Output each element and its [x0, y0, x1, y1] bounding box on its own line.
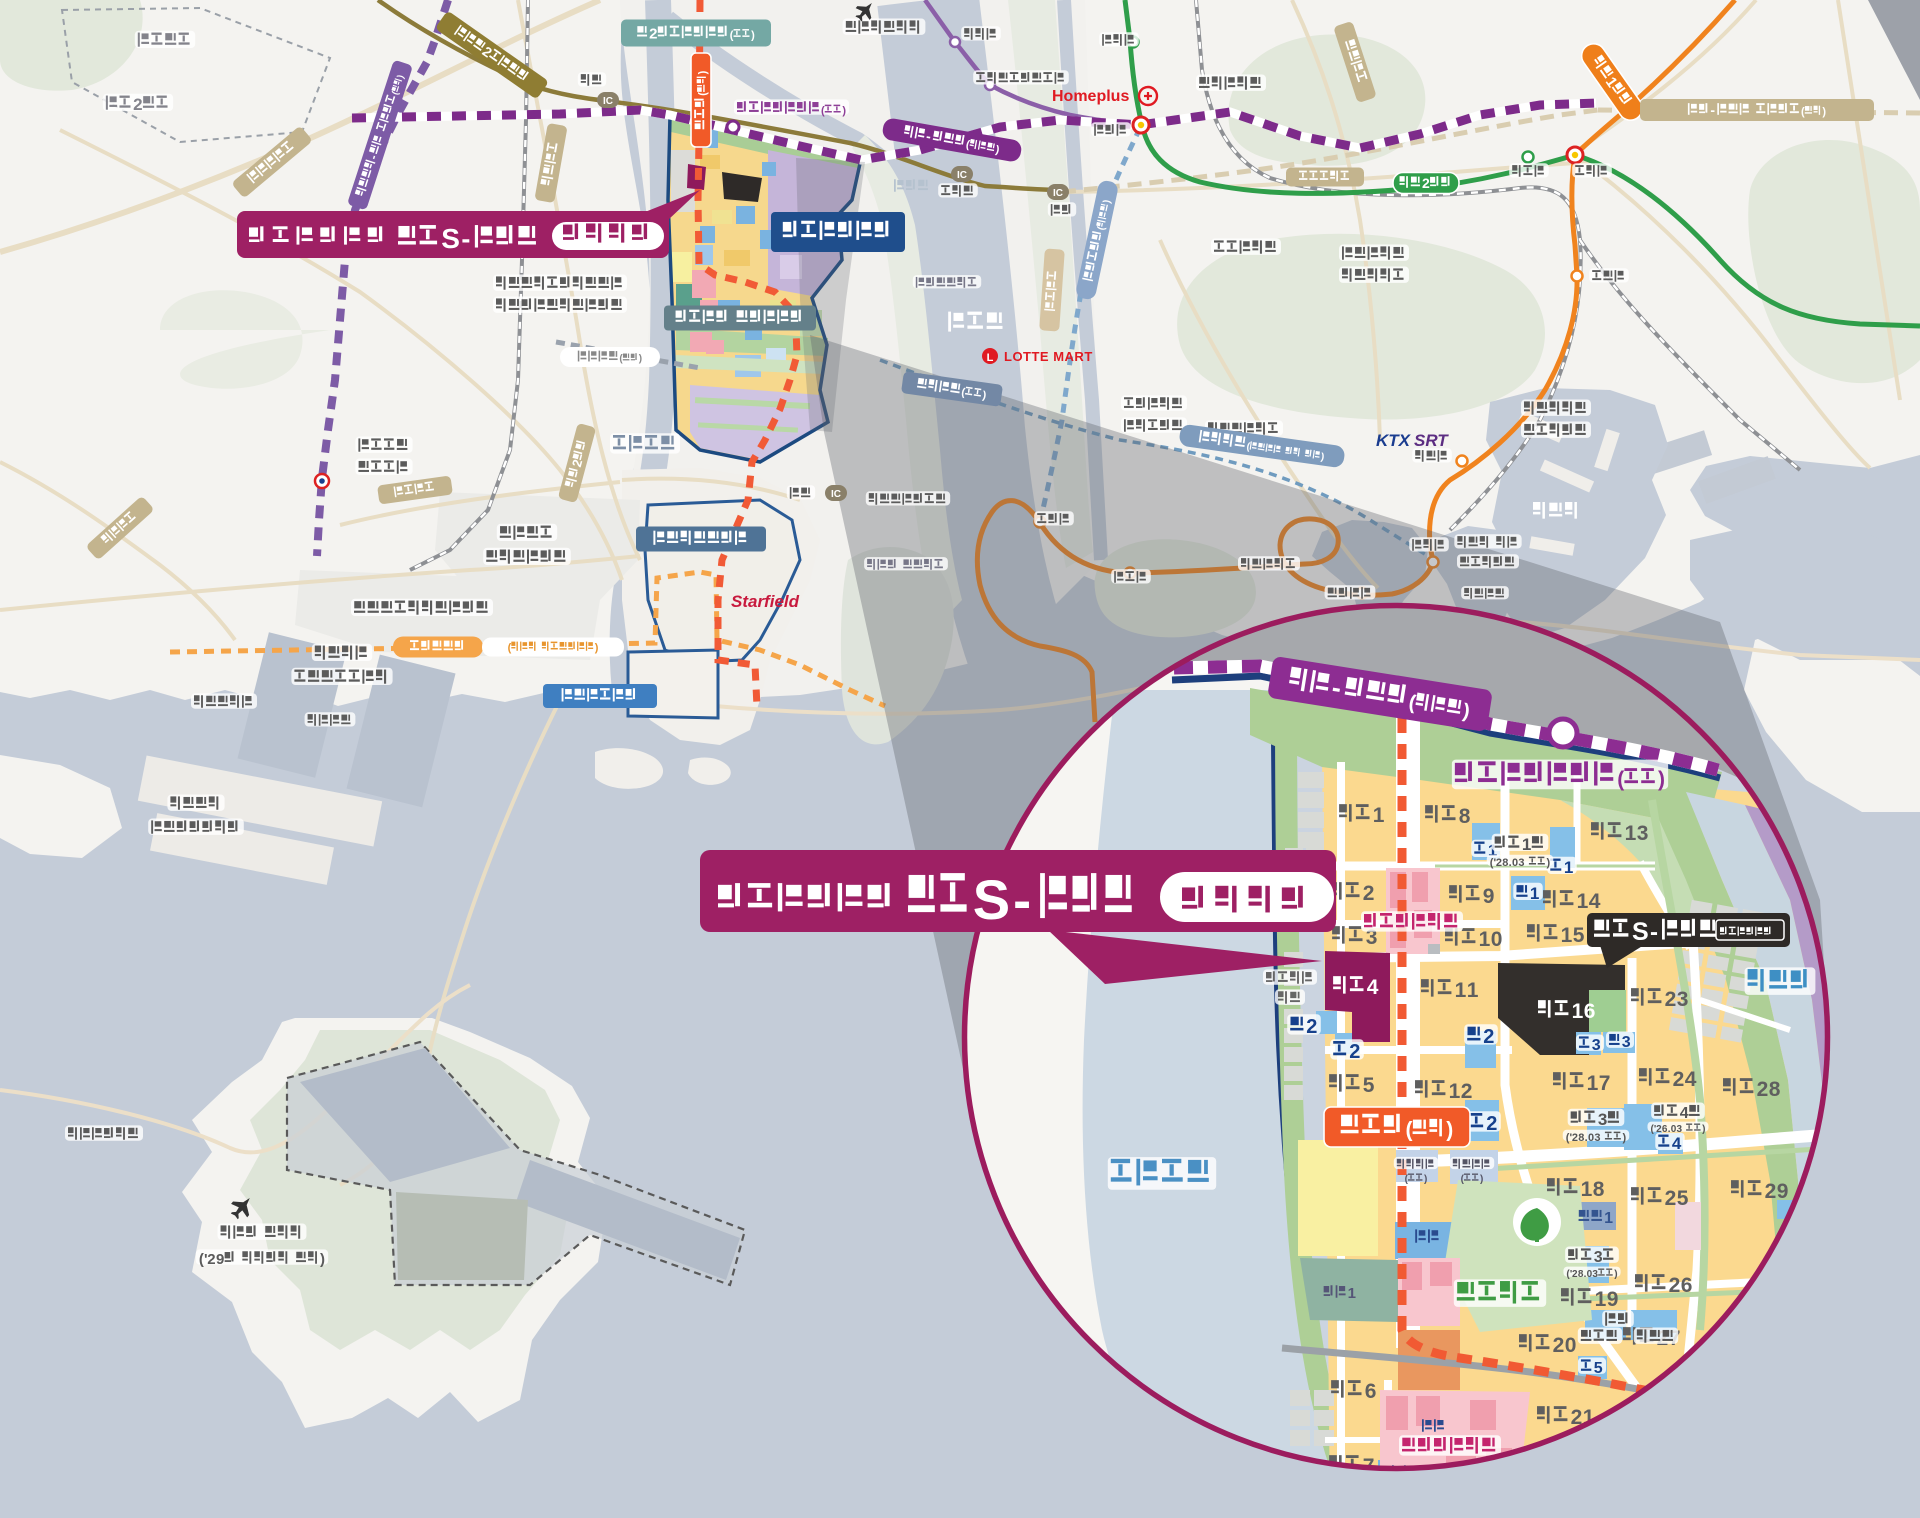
svg-text:2: 2	[1461, 1080, 1473, 1103]
svg-text:2: 2	[1306, 1016, 1317, 1038]
svg-text:5: 5	[1677, 1187, 1689, 1210]
svg-text:0: 0	[1491, 928, 1503, 951]
svg-text:4: 4	[1680, 1105, 1689, 1122]
svg-text:3: 3	[1622, 1034, 1631, 1051]
svg-text:-: -	[1650, 919, 1658, 946]
svg-text:3: 3	[1592, 1269, 1598, 1280]
svg-text:8: 8	[1459, 805, 1471, 828]
svg-text:8: 8	[1593, 1178, 1605, 1201]
svg-text:1: 1	[1577, 890, 1589, 913]
svg-text:2: 2	[1349, 1041, 1360, 1063]
svg-text:2: 2	[1669, 1274, 1681, 1297]
svg-text:3: 3	[1598, 1110, 1607, 1129]
svg-text:IC: IC	[957, 170, 967, 181]
svg-text:6: 6	[1584, 1000, 1596, 1023]
svg-text:): )	[1547, 857, 1551, 869]
svg-text:KTX: KTX	[1376, 431, 1412, 450]
svg-text:2: 2	[1572, 1132, 1578, 1144]
svg-text:2: 2	[1765, 1180, 1777, 1203]
svg-text:): )	[1446, 1119, 1453, 1142]
svg-text:(: (	[508, 642, 512, 654]
svg-text:2: 2	[1422, 175, 1430, 191]
svg-text:2: 2	[1665, 1187, 1677, 1210]
svg-text:1: 1	[1467, 979, 1479, 1002]
svg-text:L: L	[987, 352, 994, 364]
svg-text:): )	[1822, 106, 1826, 118]
svg-text:2: 2	[1757, 1078, 1769, 1101]
svg-text:1: 1	[1530, 884, 1539, 903]
svg-text:): )	[595, 642, 599, 654]
svg-text:IC: IC	[1053, 188, 1063, 199]
svg-text:): )	[1702, 1124, 1705, 1135]
svg-text:2: 2	[1486, 1113, 1497, 1135]
svg-text:): )	[1480, 1174, 1483, 1185]
svg-text:-: -	[1710, 102, 1715, 118]
svg-text:1: 1	[1373, 804, 1385, 827]
svg-text:2: 2	[1553, 1334, 1565, 1357]
svg-text:4: 4	[1367, 976, 1379, 999]
svg-text:): )	[697, 70, 709, 74]
svg-text:2: 2	[1665, 988, 1677, 1011]
svg-text:1: 1	[1587, 1072, 1599, 1095]
svg-text:3: 3	[1677, 988, 1689, 1011]
svg-text:9: 9	[1483, 885, 1495, 908]
svg-text:0: 0	[1588, 1132, 1594, 1144]
svg-text:): )	[320, 1251, 325, 1268]
svg-text:): )	[639, 354, 642, 365]
svg-text:8: 8	[1502, 857, 1508, 869]
svg-text:(: (	[697, 92, 709, 96]
svg-text:6: 6	[1365, 1380, 1377, 1403]
svg-text:SRT: SRT	[1414, 431, 1449, 450]
svg-text:2: 2	[1496, 857, 1502, 869]
svg-text:(: (	[1801, 106, 1805, 118]
svg-text:(: (	[730, 29, 734, 41]
svg-text:IC: IC	[603, 96, 613, 107]
svg-text:3: 3	[1518, 857, 1524, 869]
svg-text:(: (	[821, 105, 825, 117]
svg-text:5: 5	[1573, 924, 1585, 947]
svg-text:IC: IC	[831, 489, 841, 500]
svg-text:4: 4	[1685, 1068, 1697, 1091]
svg-text:4: 4	[1672, 1134, 1682, 1153]
svg-text:Starfield: Starfield	[731, 592, 800, 611]
svg-text:S: S	[1632, 918, 1649, 946]
svg-text:6: 6	[1681, 1274, 1693, 1297]
svg-text:(: (	[1617, 768, 1624, 791]
svg-text:5: 5	[1363, 1074, 1375, 1097]
svg-text:8: 8	[1578, 1132, 1584, 1144]
svg-text:3: 3	[1677, 1124, 1683, 1135]
svg-text:S: S	[441, 223, 460, 254]
svg-text:0: 0	[1512, 857, 1518, 869]
svg-text:5: 5	[1594, 1360, 1603, 1377]
svg-text:S: S	[973, 868, 1010, 931]
svg-text:2: 2	[1363, 882, 1375, 905]
svg-text:1: 1	[1348, 1285, 1356, 1302]
svg-text:): )	[842, 105, 846, 117]
svg-text:1: 1	[1561, 924, 1573, 947]
svg-text:3: 3	[1594, 1132, 1600, 1144]
svg-text:2: 2	[649, 25, 657, 42]
svg-text:1: 1	[1625, 822, 1637, 845]
svg-text:9: 9	[1777, 1180, 1789, 1203]
svg-text:2: 2	[207, 1251, 215, 1268]
svg-text:): )	[1424, 1174, 1427, 1185]
svg-text:-: -	[1013, 871, 1031, 931]
svg-text:): )	[1623, 1132, 1627, 1144]
svg-text:): )	[1614, 1269, 1617, 1280]
svg-text:LOTTE MART: LOTTE MART	[1004, 349, 1093, 364]
svg-text:): )	[751, 29, 755, 41]
svg-text:3: 3	[1592, 1037, 1601, 1054]
svg-text:1: 1	[1581, 1178, 1593, 1201]
svg-text:2: 2	[1483, 1026, 1494, 1048]
svg-text:7: 7	[1599, 1072, 1611, 1095]
svg-text:2: 2	[1673, 1068, 1685, 1091]
svg-text:1: 1	[1522, 835, 1531, 854]
svg-text:1: 1	[1479, 928, 1491, 951]
svg-text:0: 0	[1565, 1334, 1577, 1357]
svg-text:3: 3	[1637, 822, 1649, 845]
svg-text:-: -	[461, 224, 470, 254]
svg-text:): )	[1658, 768, 1665, 791]
svg-text:2: 2	[133, 95, 142, 114]
svg-text:1: 1	[1449, 1080, 1461, 1103]
svg-text:1: 1	[1595, 1288, 1607, 1311]
svg-text:8: 8	[1769, 1078, 1781, 1101]
svg-text:Homeplus: Homeplus	[1052, 88, 1129, 105]
svg-text:1: 1	[1564, 858, 1573, 877]
svg-text:(: (	[1405, 1119, 1412, 1142]
svg-text:3: 3	[1594, 1249, 1603, 1266]
svg-text:4: 4	[1589, 890, 1601, 913]
svg-text:1: 1	[1604, 1210, 1613, 1227]
svg-text:9: 9	[1607, 1288, 1619, 1311]
svg-text:1: 1	[1572, 1000, 1584, 1023]
svg-text:1: 1	[1455, 979, 1467, 1002]
svg-text:9: 9	[216, 1251, 224, 1268]
